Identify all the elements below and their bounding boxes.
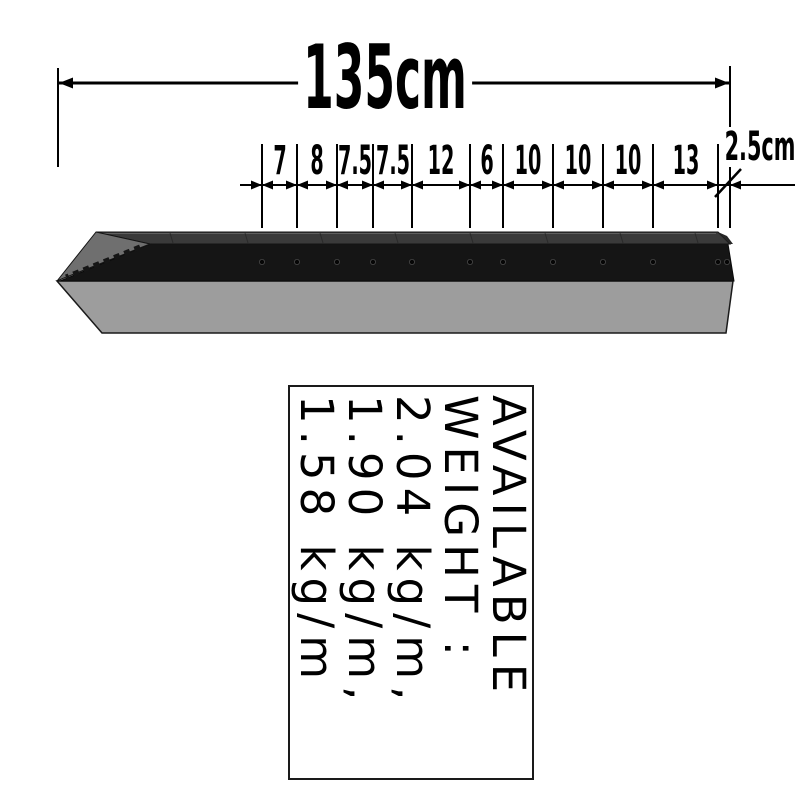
weight-spec-line: WEIGHT : [436,387,484,778]
post-hole [600,259,605,264]
segment-dimension-text: 10 [615,141,642,181]
post-web-face [60,244,734,281]
segment-arrow-left [653,181,664,190]
chain-outer-arrow-right [730,181,741,190]
segment-dimension-label: 12 [413,141,469,181]
segment-arrow-right [592,181,603,190]
segment-dimension-text: 7 [273,141,286,181]
segment-arrow-left [503,181,514,190]
weight-spec-line: AVAILABLE [484,387,532,778]
weight-spec-line: 1.90 kg/m, [340,387,388,778]
segment-arrow-right [707,181,718,190]
segment-arrow-right [459,181,470,190]
segment-arrow-left [412,181,423,190]
diagram-canvas: 135cm 787.57.512610101013 2.5cm AVAILABL… [0,0,800,800]
weight-spec-text: AVAILABLEWEIGHT :2.04 kg/m,1.90 kg/m,1.5… [290,387,532,778]
end-dimension-label: 2.5cm [690,127,800,167]
weight-spec-line: 1.58 kg/m [292,387,340,778]
segment-arrow-right [642,181,653,190]
post-bottom-flange-face [57,281,733,333]
post-hole [467,259,472,264]
post-hole [370,259,375,264]
steel-post [57,232,734,333]
segment-dimension-text: 6 [480,141,493,181]
post-hole [259,259,264,264]
post-hole [715,259,720,264]
weight-spec-box: AVAILABLEWEIGHT :2.04 kg/m,1.90 kg/m,1.5… [288,385,534,780]
end-dimension-text: 2.5cm [724,127,797,167]
segment-dimension-label: 10 [600,141,656,181]
segment-arrow-right [542,181,553,190]
segment-dimension-label: 10 [550,141,606,181]
segment-dimension-text: 12 [428,141,455,181]
overall-dimension-label: 135cm [211,34,559,122]
overall-arrow-right [715,78,729,89]
segment-arrow-left [262,181,273,190]
segment-arrow-left [603,181,614,190]
segment-dimension-text: 10 [515,141,542,181]
post-hole [550,259,555,264]
segment-arrow-left [553,181,564,190]
post-hole [724,259,729,264]
segment-dimension-label: 6 [473,141,501,181]
post-hole [334,259,339,264]
post-hole [650,259,655,264]
overall-arrow-left [59,78,73,89]
weight-spec-line: 2.04 kg/m, [388,387,436,778]
post-hole [500,259,505,264]
overall-dimension-text: 135cm [298,34,472,122]
segment-dimension-text: 10 [565,141,592,181]
post-hole [409,259,414,264]
segment-dimension-label: 7 [266,141,294,181]
post-hole [294,259,299,264]
segment-dimension-label: 10 [500,141,556,181]
chain-outer-arrow-left [251,181,262,190]
segment-arrow-right [326,181,337,190]
segment-dimension-text: 7.5 [375,141,409,181]
segment-arrow-right [286,181,297,190]
segment-arrow-left [297,181,308,190]
